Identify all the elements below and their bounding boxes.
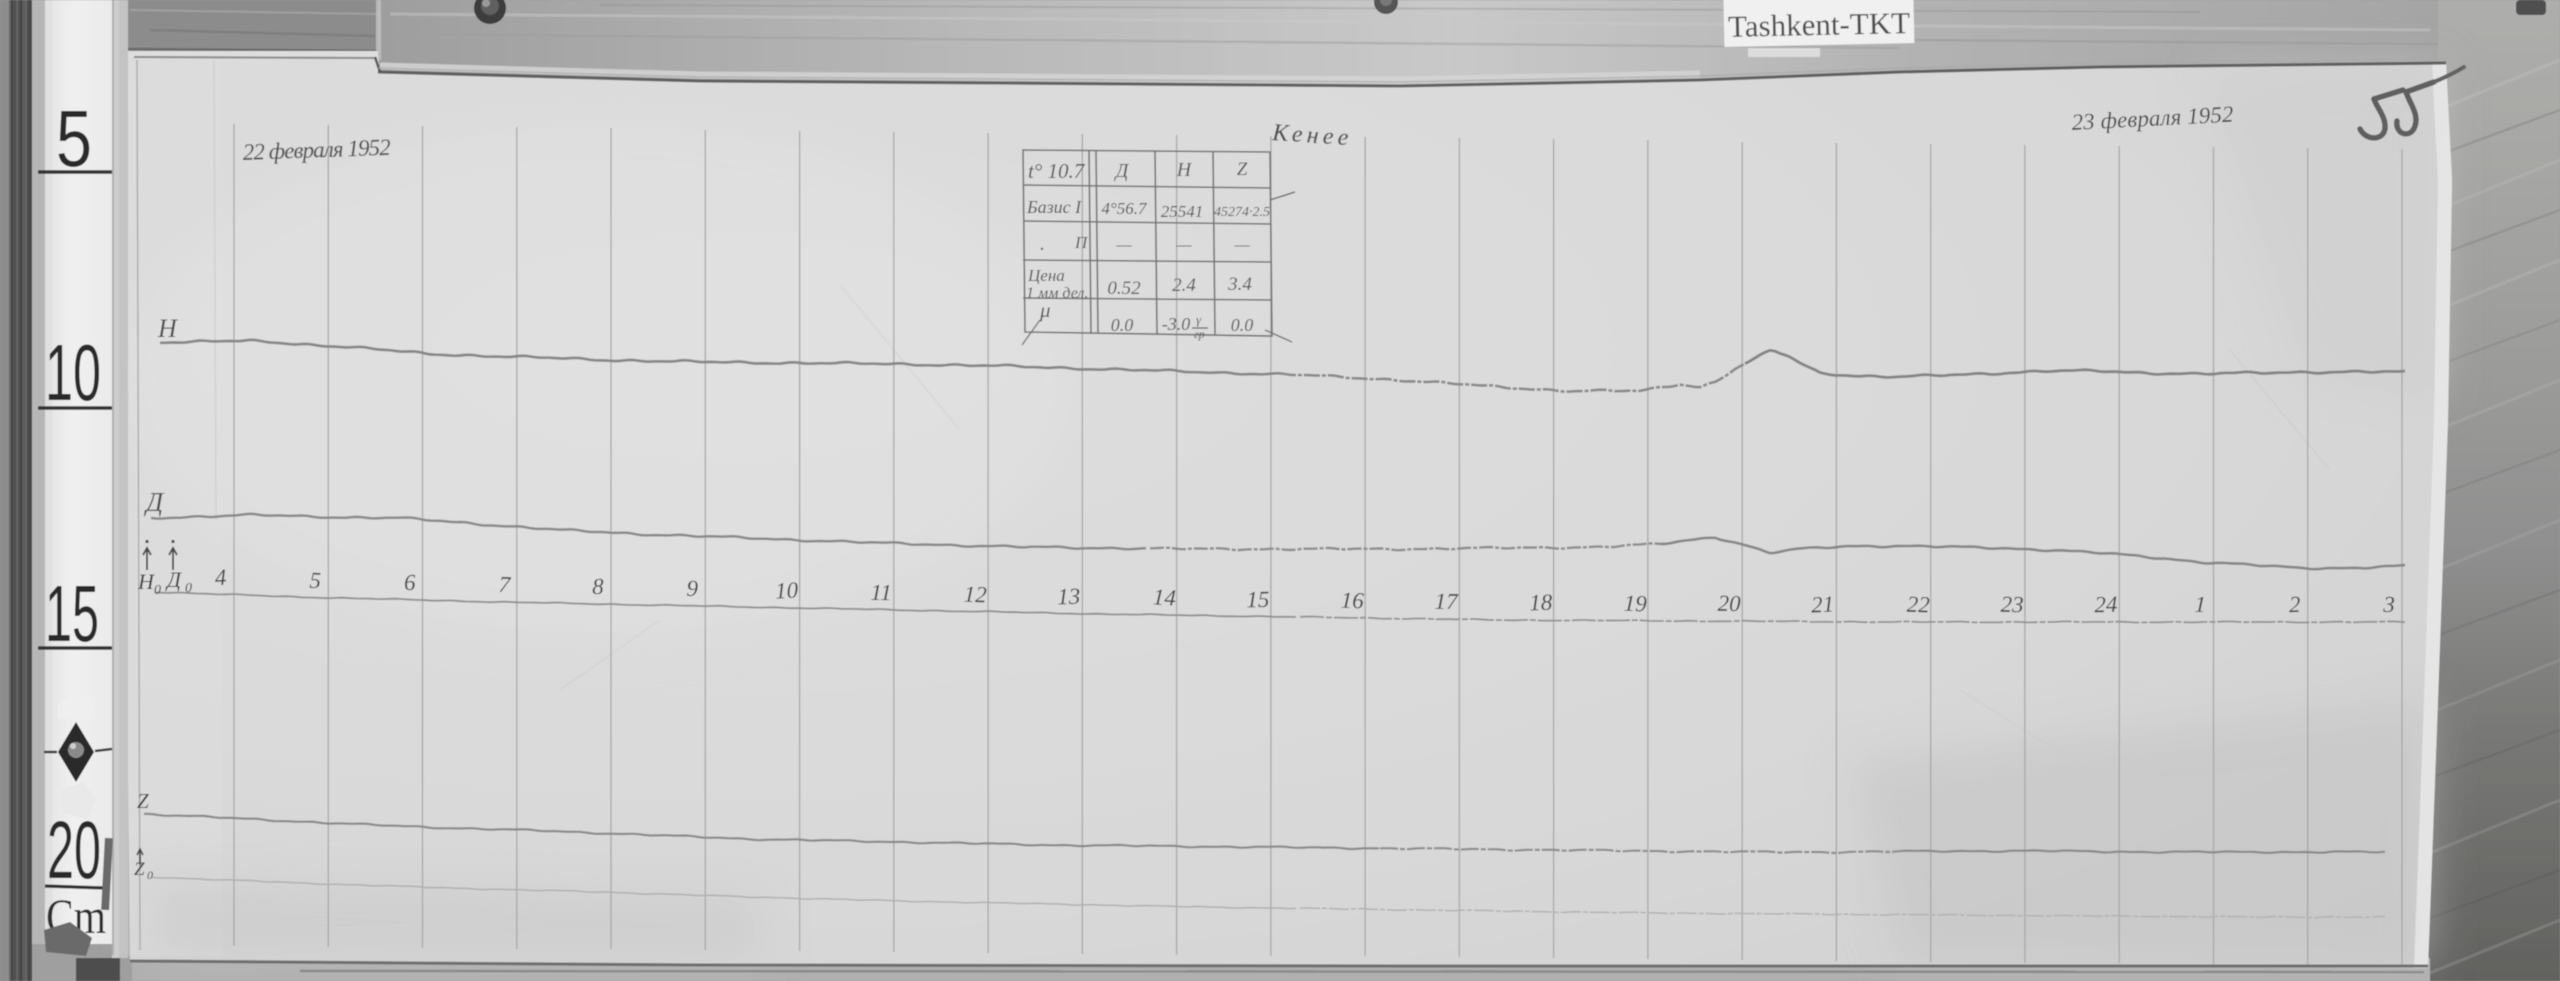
svg-text:15: 15: [1246, 587, 1269, 612]
svg-text:H: H: [157, 314, 178, 343]
svg-text:t° 10.7: t° 10.7: [1028, 159, 1086, 183]
svg-text:Базис I: Базис I: [1026, 197, 1082, 217]
svg-text:15: 15: [45, 569, 99, 658]
svg-text:Z: Z: [1237, 159, 1248, 180]
svg-text:-3.0: -3.0: [1162, 314, 1191, 334]
svg-text:24: 24: [2094, 592, 2117, 617]
svg-text:6: 6: [404, 570, 417, 595]
svg-text:21: 21: [1810, 591, 1834, 617]
svg-text:0: 0: [147, 868, 153, 882]
svg-text:H: H: [137, 569, 155, 594]
svg-text:5: 5: [309, 568, 321, 593]
svg-text:12: 12: [963, 582, 987, 608]
svg-text:1: 1: [2194, 592, 2206, 617]
svg-text:0.0: 0.0: [1231, 315, 1254, 335]
svg-text:1 мм дел.: 1 мм дел.: [1026, 285, 1088, 302]
svg-text:22: 22: [1906, 592, 1930, 618]
svg-text:45274·2.5: 45274·2.5: [1214, 205, 1270, 220]
svg-text:П: П: [1074, 233, 1089, 252]
svg-text:μ: μ: [1039, 298, 1051, 322]
svg-text:.: .: [1040, 233, 1045, 255]
svg-text:20: 20: [1717, 591, 1741, 616]
svg-text:18: 18: [1529, 590, 1553, 616]
svg-text:гр: гр: [1194, 327, 1205, 341]
svg-text:Д: Д: [165, 567, 182, 592]
svg-text:4°56.7: 4°56.7: [1101, 199, 1148, 218]
svg-text:2.4: 2.4: [1172, 275, 1196, 296]
svg-text:22 февраля 1952: 22 февраля 1952: [242, 135, 391, 165]
svg-text:—: —: [1233, 235, 1250, 254]
svg-text:10: 10: [774, 577, 799, 603]
svg-text:0: 0: [154, 583, 161, 598]
svg-text:Кенее: Кенее: [1271, 120, 1350, 151]
svg-text:10: 10: [45, 328, 101, 417]
svg-text:—: —: [1115, 235, 1132, 254]
svg-text:19: 19: [1623, 591, 1647, 617]
svg-text:γ: γ: [1196, 312, 1202, 327]
svg-text:20: 20: [47, 805, 101, 896]
svg-text:9: 9: [686, 576, 699, 601]
svg-text:0: 0: [185, 581, 192, 596]
svg-text:11: 11: [870, 580, 892, 605]
svg-text:2: 2: [2289, 592, 2301, 617]
svg-text:Z: Z: [137, 789, 149, 813]
svg-text:0.52: 0.52: [1107, 278, 1141, 299]
svg-text:17: 17: [1434, 589, 1459, 614]
svg-text:4: 4: [214, 565, 227, 591]
svg-text:23: 23: [2000, 592, 2023, 617]
svg-text:25541: 25541: [1161, 202, 1204, 221]
svg-text:Z: Z: [134, 859, 145, 880]
svg-text:3.4: 3.4: [1227, 274, 1252, 295]
svg-text:Цена: Цена: [1027, 266, 1065, 285]
svg-text:0.0: 0.0: [1111, 315, 1134, 335]
svg-text:—: —: [1175, 235, 1192, 254]
svg-text:16: 16: [1340, 588, 1364, 614]
svg-text:Tashkent-TKT: Tashkent-TKT: [1728, 5, 1911, 44]
svg-text:13: 13: [1057, 584, 1081, 610]
svg-text:8: 8: [592, 574, 604, 599]
svg-text:3: 3: [2382, 592, 2395, 617]
svg-text:14: 14: [1152, 584, 1176, 610]
svg-text:Д: Д: [1114, 160, 1130, 182]
svg-text:Д: Д: [143, 487, 165, 517]
svg-text:5: 5: [56, 94, 92, 183]
svg-text:H: H: [1176, 159, 1193, 181]
